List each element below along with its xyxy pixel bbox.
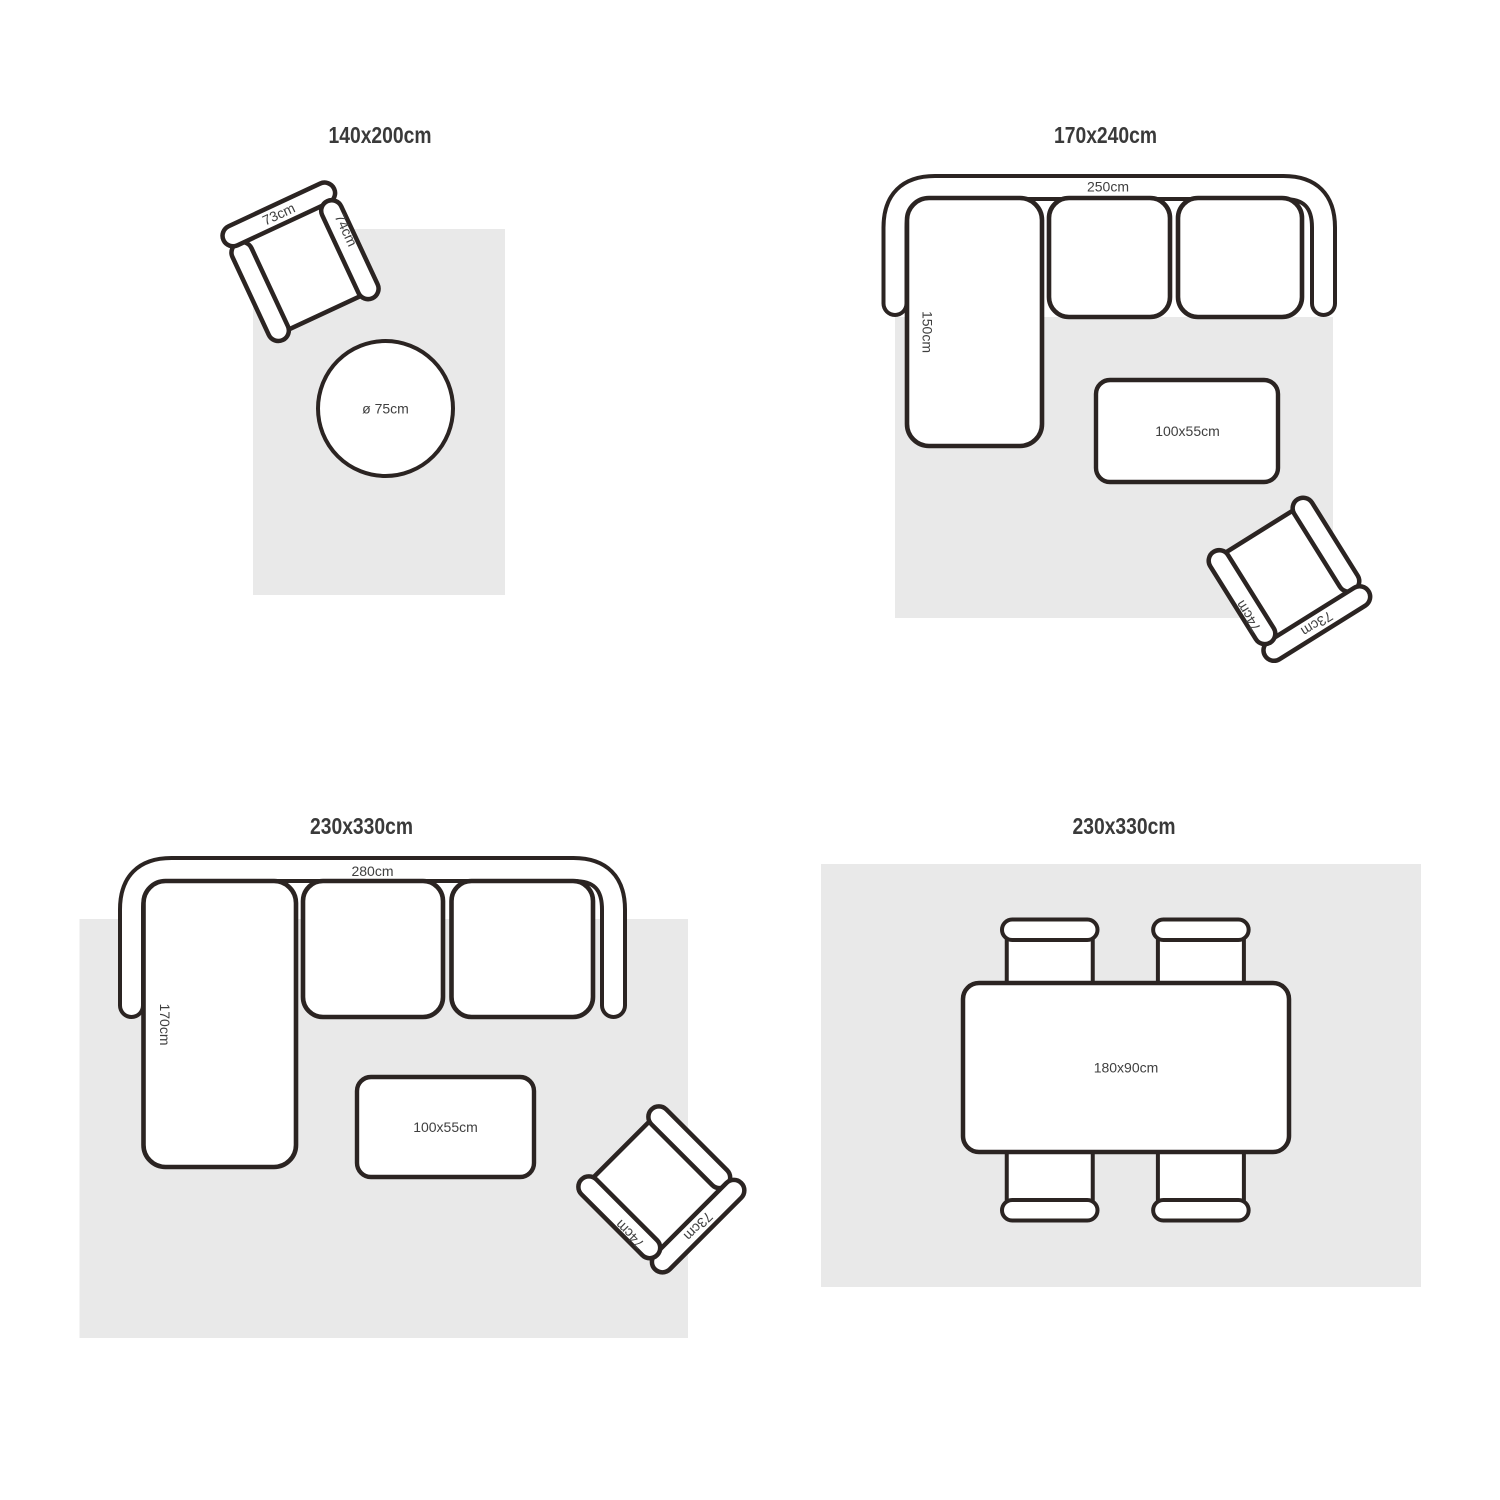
svg-text:170x240cm: 170x240cm <box>1054 122 1157 148</box>
svg-text:100x55cm: 100x55cm <box>1155 423 1220 439</box>
svg-text:230x330cm: 230x330cm <box>1073 813 1176 839</box>
svg-text:140x200cm: 140x200cm <box>329 122 432 148</box>
svg-text:170cm: 170cm <box>157 1003 173 1045</box>
svg-text:230x330cm: 230x330cm <box>310 813 413 839</box>
svg-text:250cm: 250cm <box>1087 178 1129 194</box>
svg-text:180x90cm: 180x90cm <box>1094 1060 1159 1076</box>
svg-text:100x55cm: 100x55cm <box>413 1119 478 1135</box>
svg-text:280cm: 280cm <box>351 863 393 879</box>
svg-text:150cm: 150cm <box>920 311 936 353</box>
svg-text:ø 75cm: ø 75cm <box>362 401 409 417</box>
